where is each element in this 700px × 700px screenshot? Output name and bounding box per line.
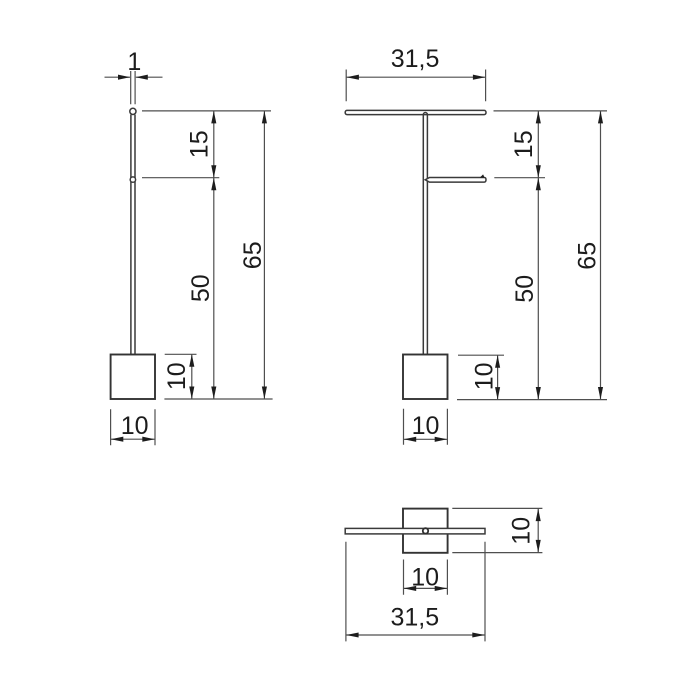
svg-text:10: 10 [121, 412, 149, 440]
svg-text:65: 65 [573, 242, 601, 270]
svg-text:50: 50 [511, 275, 539, 303]
svg-text:31,5: 31,5 [391, 45, 440, 73]
svg-text:15: 15 [510, 130, 538, 158]
svg-text:10: 10 [411, 563, 439, 591]
svg-text:50: 50 [187, 274, 215, 302]
svg-text:10: 10 [412, 412, 440, 440]
svg-text:65: 65 [239, 241, 267, 269]
svg-text:10: 10 [163, 362, 191, 390]
svg-text:15: 15 [185, 130, 213, 158]
svg-text:31,5: 31,5 [390, 604, 439, 632]
svg-text:10: 10 [507, 517, 535, 545]
svg-text:10: 10 [470, 362, 498, 390]
svg-text:1: 1 [127, 48, 141, 76]
